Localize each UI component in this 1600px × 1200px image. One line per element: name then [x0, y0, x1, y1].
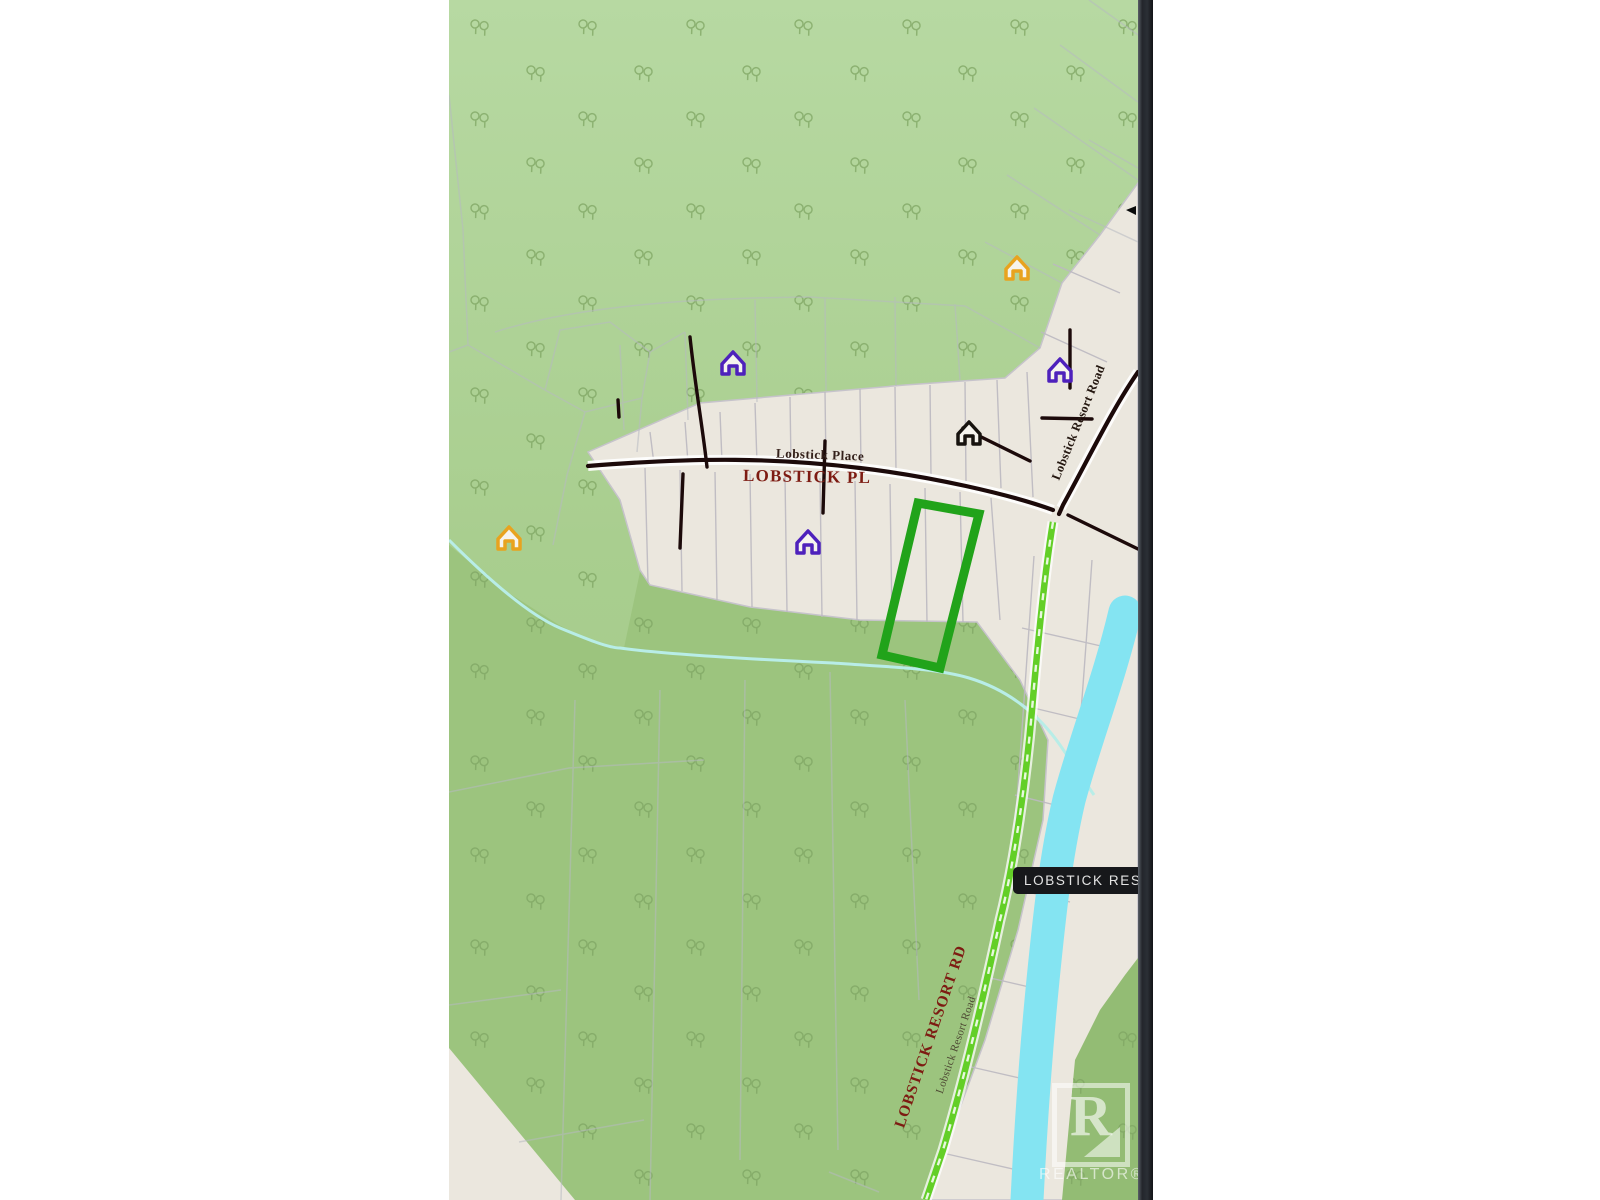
- place-label: LOBSTICK RESORT: [1013, 867, 1138, 894]
- map-viewport[interactable]: Lobstick Place LOBSTICK PL Lobstick Reso…: [449, 0, 1138, 1200]
- realtor-logo-triangle: [1084, 1127, 1120, 1157]
- label-lobstick-place: Lobstick Place: [776, 445, 865, 463]
- window-edge-bar: [1138, 0, 1153, 1200]
- map-svg: Lobstick Place LOBSTICK PL Lobstick Reso…: [449, 0, 1138, 1200]
- realtor-logo-icon: R: [1052, 1083, 1130, 1167]
- mouse-cursor-icon: [1126, 206, 1136, 215]
- screenshot-page: Lobstick Place LOBSTICK PL Lobstick Reso…: [0, 0, 1600, 1200]
- realtor-watermark-text: REALTOR®: [1021, 1166, 1138, 1184]
- label-lobstick-pl: LOBSTICK PL: [743, 466, 871, 487]
